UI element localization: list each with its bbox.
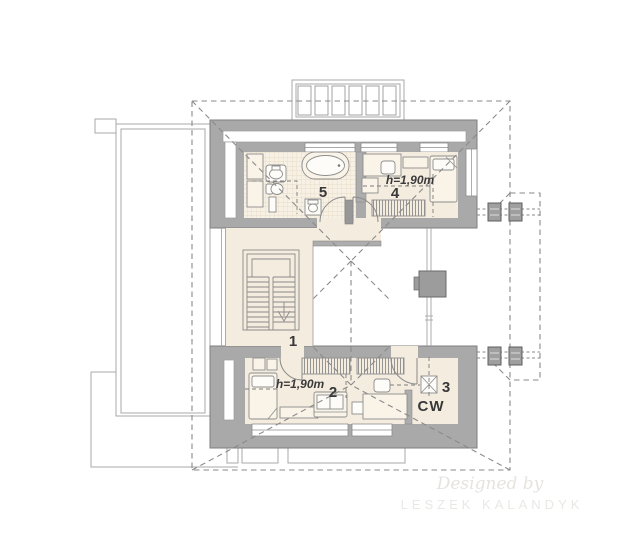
bed [249, 373, 277, 419]
room-5-label: 5 [319, 184, 327, 201]
watermark-name: LESZEK KALANDYK [401, 497, 584, 512]
dresser [280, 407, 318, 418]
nightstand [253, 358, 265, 370]
floor-plan-svg: 5 4 h=1,90m 1 h=1,90m 2 3 CW Designed by… [0, 0, 638, 556]
radiator [269, 197, 276, 212]
nightstand [362, 178, 378, 193]
shelf [403, 157, 428, 168]
toilet-icon [266, 184, 283, 195]
room-3-code: CW [418, 398, 445, 415]
bath-cabinet [247, 181, 263, 207]
chair [374, 379, 390, 392]
bathtub-icon [302, 152, 349, 179]
bath-cabinet [247, 154, 263, 179]
floor-plan-page: 5 4 h=1,90m 1 h=1,90m 2 3 CW Designed by… [0, 0, 638, 556]
room-4-height-note: h=1,90m [386, 173, 435, 187]
room-2-height-note: h=1,90m [276, 377, 325, 391]
wardrobe [372, 200, 425, 216]
room-1-label: 1 [289, 333, 297, 350]
wc-icon [305, 199, 321, 215]
nightstand [267, 359, 277, 370]
room-4-label: 4 [391, 185, 400, 202]
left-terrace-outline [95, 119, 210, 416]
watermark: Designed by LESZEK KALANDYK [401, 474, 584, 512]
desk [363, 394, 407, 419]
stool [352, 402, 364, 414]
room-3-label: 3 [442, 379, 450, 396]
room-2-label: 2 [329, 384, 337, 401]
watermark-prefix: Designed by [436, 474, 544, 494]
chimney-markers [488, 203, 522, 365]
void-chimney [419, 271, 446, 297]
wardrobe [357, 358, 404, 374]
wardrobe [302, 358, 350, 374]
washbasin-icon [266, 165, 286, 182]
